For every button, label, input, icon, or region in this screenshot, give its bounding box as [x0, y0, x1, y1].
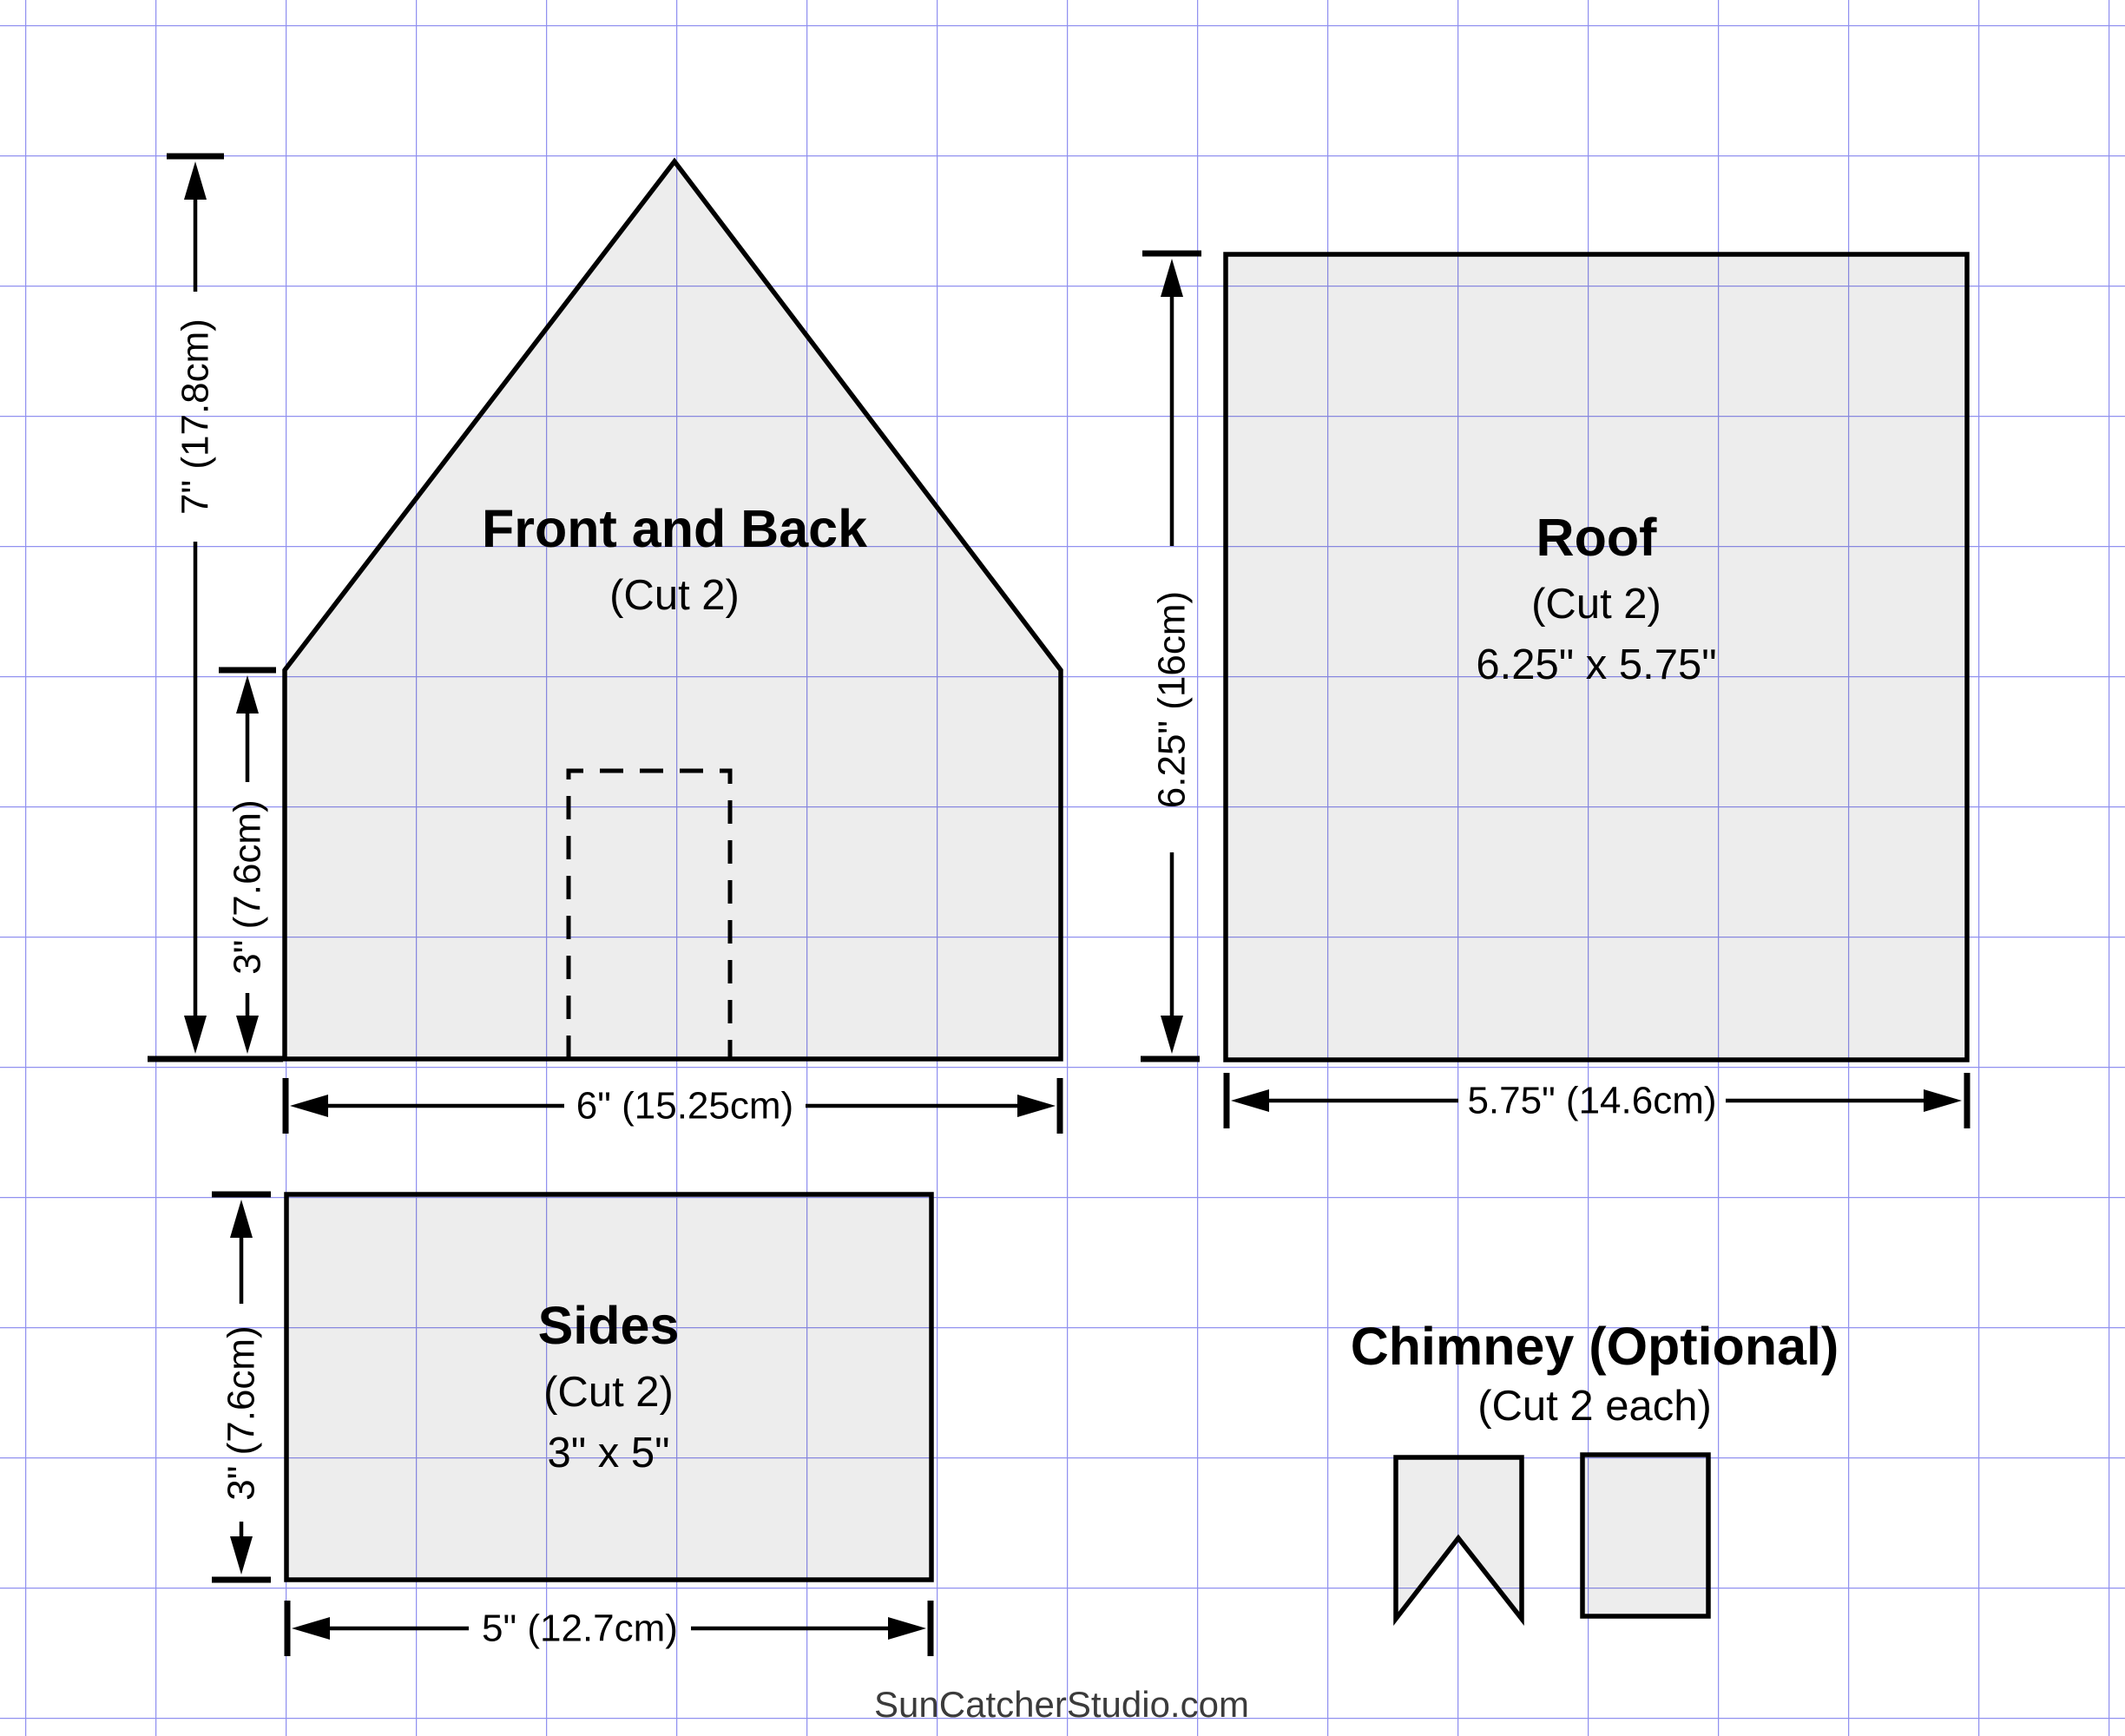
sides-size: 3" x 5": [547, 1430, 669, 1476]
roof-size: 6.25" x 5.75": [1476, 641, 1716, 688]
dim-roof-width-label: 5.75" (14.6cm): [1467, 1080, 1716, 1122]
chimney-title: Chimney (Optional): [1351, 1317, 1839, 1376]
dim-front-back-total-height-label: 7" (17.8cm): [174, 319, 217, 515]
chimney-plain-piece: [1582, 1455, 1708, 1616]
chimney-subtitle: (Cut 2 each): [1477, 1383, 1712, 1430]
front-back-title: Front and Back: [482, 499, 867, 558]
pattern-diagram: 7" (17.8cm) 3" (7.6cm) 6" (15.25cm) 6.25…: [0, 0, 2125, 1736]
roof-title: Roof: [1536, 508, 1658, 567]
sides-title: Sides: [538, 1296, 680, 1355]
dim-roof-height-label: 6.25" (16cm): [1151, 591, 1194, 808]
watermark-text: SunCatcherStudio.com: [874, 1684, 1249, 1725]
front-back-subtitle: (Cut 2): [609, 572, 740, 619]
dim-sides-height-label: 3" (7.6cm): [220, 1325, 263, 1500]
pattern-sheet: 7" (17.8cm) 3" (7.6cm) 6" (15.25cm) 6.25…: [0, 0, 2125, 1736]
sides-subtitle: (Cut 2): [543, 1369, 674, 1416]
dim-front-back-width-label: 6" (15.25cm): [576, 1085, 793, 1128]
dim-front-back-wall-height-label: 3" (7.6cm): [227, 799, 269, 974]
dim-sides-width-label: 5" (12.7cm): [482, 1608, 678, 1650]
roof-subtitle: (Cut 2): [1531, 581, 1661, 628]
